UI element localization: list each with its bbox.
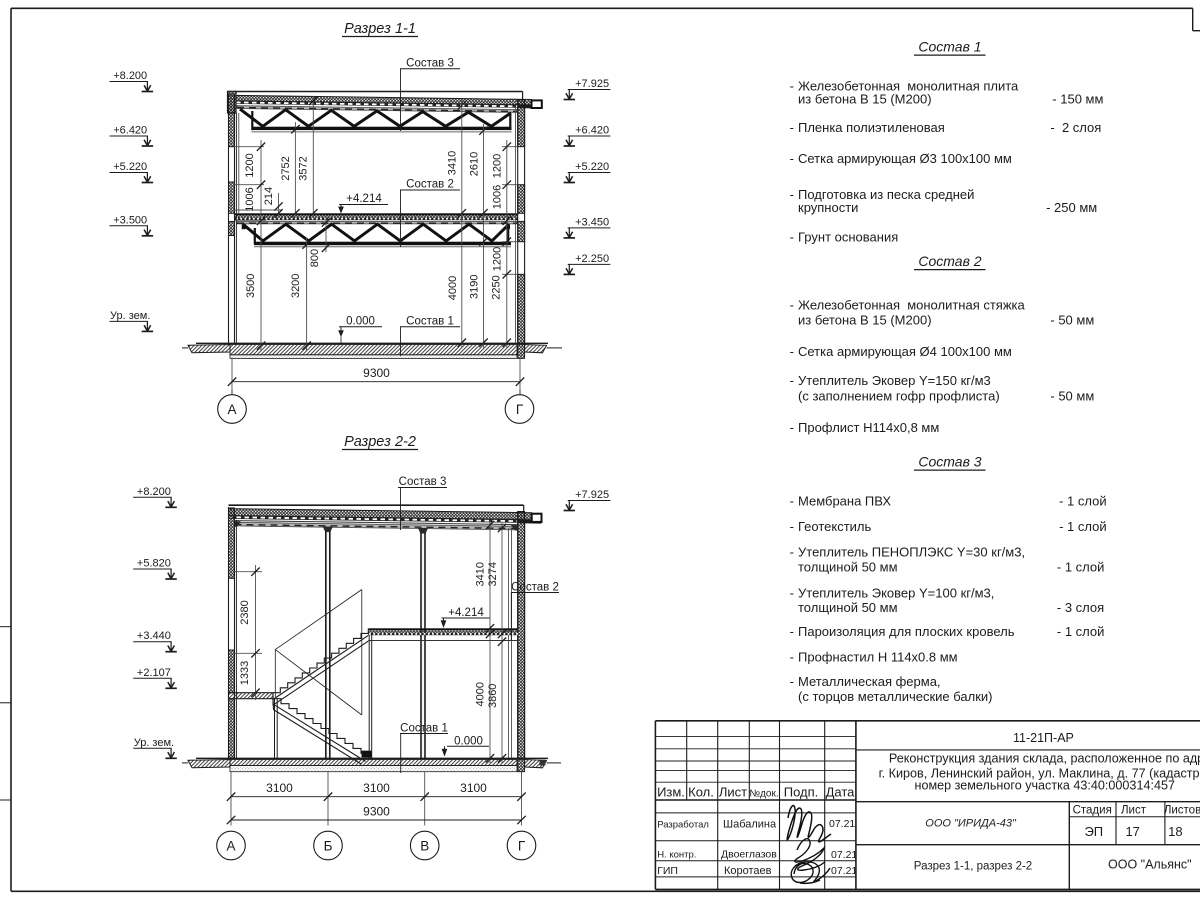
svg-text:4000: 4000 <box>475 682 487 706</box>
svg-text:1200: 1200 <box>491 247 503 271</box>
svg-text:Дата: Дата <box>826 784 856 799</box>
svg-text:-: - <box>790 586 794 601</box>
svg-text:-: - <box>790 519 794 534</box>
svg-text:1200: 1200 <box>491 154 503 178</box>
svg-text:Стадия: Стадия <box>1073 805 1112 817</box>
svg-text:+4.214: +4.214 <box>346 193 382 205</box>
svg-text:+7.925: +7.925 <box>575 489 609 501</box>
svg-text:ЭП: ЭП <box>1084 824 1103 839</box>
svg-text:- 50 мм: - 50 мм <box>1050 388 1094 403</box>
svg-text:Б: Б <box>324 839 333 854</box>
svg-text:-: - <box>790 79 794 94</box>
svg-text:1006: 1006 <box>244 187 256 211</box>
svg-text:9300: 9300 <box>363 366 390 380</box>
svg-text:-: - <box>790 674 794 689</box>
svg-text:+5.820: +5.820 <box>137 558 171 570</box>
svg-text:3572: 3572 <box>298 156 310 180</box>
svg-text:+4.214: +4.214 <box>448 607 484 619</box>
svg-text:- 1 слой: - 1 слой <box>1057 560 1105 575</box>
svg-text:Мембрана ПВХ: Мембрана ПВХ <box>798 494 891 509</box>
svg-text:Состав 2: Состав 2 <box>511 581 559 593</box>
svg-text:-: - <box>790 120 794 135</box>
svg-text:+7.925: +7.925 <box>575 78 609 90</box>
svg-text:3410: 3410 <box>475 562 487 586</box>
svg-text:Состав 1: Состав 1 <box>918 39 981 55</box>
svg-text:Коротаев: Коротаев <box>724 865 772 877</box>
svg-text:4000: 4000 <box>447 276 459 300</box>
svg-text:номер земельного участка 43:40: номер земельного участка 43:40:000314:45… <box>915 779 1175 793</box>
svg-text:+8.200: +8.200 <box>137 486 171 498</box>
svg-text:Разрез 1-1: Разрез 1-1 <box>344 21 416 37</box>
svg-text:Н. контр.: Н. контр. <box>657 850 696 861</box>
svg-text:(с торцов металлические балки): (с торцов металлические балки) <box>798 689 993 704</box>
svg-text:Пленка полиэтиленовая: Пленка полиэтиленовая <box>798 120 945 135</box>
svg-text:07.21: 07.21 <box>831 849 857 861</box>
svg-text:3100: 3100 <box>460 781 487 795</box>
svg-text:Подп.: Подп. <box>784 784 819 799</box>
svg-text:2380: 2380 <box>239 600 251 624</box>
svg-text:07.21: 07.21 <box>831 865 857 877</box>
svg-text:(с заполнением гофр профлиста): (с заполнением гофр профлиста) <box>798 388 1000 403</box>
svg-text:ООО "Альянс": ООО "Альянс" <box>1108 858 1192 872</box>
svg-text:ООО "ИРИДА-43": ООО "ИРИДА-43" <box>925 818 1017 830</box>
svg-text:-: - <box>790 344 794 359</box>
svg-text:толщиной 50 мм: толщиной 50 мм <box>798 600 898 615</box>
svg-text:- 1 слой: - 1 слой <box>1057 624 1105 639</box>
svg-text:3410: 3410 <box>447 151 459 175</box>
svg-text:+6.420: +6.420 <box>575 125 609 137</box>
svg-text:Состав 3: Состав 3 <box>399 476 447 488</box>
svg-text:17: 17 <box>1125 824 1139 839</box>
svg-text:Грунт основания: Грунт основания <box>798 229 898 244</box>
svg-text:Шабалина: Шабалина <box>723 819 777 831</box>
svg-text:+5.220: +5.220 <box>575 161 609 173</box>
svg-text:3190: 3190 <box>468 274 480 298</box>
svg-text:Состав 3: Состав 3 <box>918 454 981 470</box>
svg-text:-: - <box>790 373 794 388</box>
svg-text:-: - <box>790 297 794 312</box>
svg-text:Профнастил Н 114х0.8 мм: Профнастил Н 114х0.8 мм <box>798 649 958 664</box>
svg-text:Металлическая ферма,: Металлическая ферма, <box>798 674 941 689</box>
svg-text:Сетка армирующая Ø3 100х100 мм: Сетка армирующая Ø3 100х100 мм <box>798 151 1012 166</box>
svg-text:+3.450: +3.450 <box>575 216 609 228</box>
svg-text:-: - <box>790 151 794 166</box>
svg-text:-: - <box>790 649 794 664</box>
svg-text:3500: 3500 <box>245 274 257 298</box>
svg-text:Железобетонная монолитная стя: Железобетонная монолитная стяжка <box>798 297 1026 312</box>
svg-text:- 150 мм: - 150 мм <box>1052 91 1103 106</box>
svg-text:1006: 1006 <box>491 185 503 209</box>
svg-text:-: - <box>790 229 794 244</box>
svg-text:07.21: 07.21 <box>829 818 855 830</box>
svg-text:ГИП: ГИП <box>657 865 678 877</box>
svg-text:Состав 1: Состав 1 <box>406 316 454 328</box>
svg-text:3200: 3200 <box>290 274 302 298</box>
svg-text:3100: 3100 <box>363 781 390 795</box>
svg-text:- 1 слой: - 1 слой <box>1059 494 1107 509</box>
svg-text:2610: 2610 <box>468 152 480 176</box>
svg-text:2752: 2752 <box>280 156 292 180</box>
svg-text:Профлист Н114х0,8 мм: Профлист Н114х0,8 мм <box>798 420 939 435</box>
svg-text:Состав 3: Состав 3 <box>406 58 454 70</box>
svg-text:Утеплитель ПЕНОПЛЭКС Y=30 кг/м: Утеплитель ПЕНОПЛЭКС Y=30 кг/м3, <box>798 544 1025 559</box>
svg-text:Состав 2: Состав 2 <box>918 253 981 269</box>
svg-text:Разработал: Разработал <box>657 820 709 831</box>
svg-text:214: 214 <box>263 187 275 205</box>
svg-text:1200: 1200 <box>244 153 256 177</box>
svg-text:Утеплитель Эковер Y=150 кг/м3: Утеплитель Эковер Y=150 кг/м3 <box>798 373 991 388</box>
svg-text:Разрез 1-1, разрез 2-2: Разрез 1-1, разрез 2-2 <box>914 861 1032 873</box>
svg-text:18: 18 <box>1168 824 1182 839</box>
svg-text:Геотекстиль: Геотекстиль <box>798 519 872 534</box>
svg-text:Реконструкция здания склада, р: Реконструкция здания склада, расположенн… <box>889 751 1200 765</box>
svg-text:+6.420: +6.420 <box>113 125 147 137</box>
svg-text:3100: 3100 <box>266 781 293 795</box>
svg-text:В: В <box>420 839 429 854</box>
svg-text:3860: 3860 <box>487 684 499 708</box>
svg-text:Состав 2: Состав 2 <box>406 179 454 191</box>
svg-text:Состав 1: Состав 1 <box>400 722 448 734</box>
svg-text:А: А <box>227 402 236 417</box>
svg-text:Пароизоляция для плоских крове: Пароизоляция для плоских кровель <box>798 624 1015 639</box>
svg-text:-: - <box>790 544 794 559</box>
svg-text:800: 800 <box>309 249 321 267</box>
svg-text:+2.250: +2.250 <box>575 253 609 265</box>
svg-text:Листов: Листов <box>1164 805 1200 817</box>
svg-text:Ур. зем.: Ур. зем. <box>110 310 150 322</box>
svg-text:№док.: №док. <box>749 788 778 799</box>
svg-text:9300: 9300 <box>363 804 390 818</box>
svg-text:крупности: крупности <box>798 200 858 215</box>
svg-text:11-21П-АР: 11-21П-АР <box>1013 731 1074 745</box>
svg-text:+3.440: +3.440 <box>137 630 171 642</box>
svg-text:Лист: Лист <box>719 784 747 799</box>
svg-text:3274: 3274 <box>487 562 499 586</box>
svg-text:А: А <box>226 839 235 854</box>
svg-text:Ур. зем.: Ур. зем. <box>134 737 174 749</box>
svg-text:- 1 слой: - 1 слой <box>1059 519 1107 534</box>
svg-text:0.000: 0.000 <box>454 735 483 747</box>
svg-text:толщиной 50 мм: толщиной 50 мм <box>798 560 898 575</box>
svg-text:+2.107: +2.107 <box>137 667 171 679</box>
svg-text:- 250 мм: - 250 мм <box>1046 200 1097 215</box>
svg-text:-: - <box>790 420 794 435</box>
svg-text:- 2 слоя: - 2 слоя <box>1050 120 1101 135</box>
svg-text:Г: Г <box>516 402 524 417</box>
svg-text:-: - <box>790 494 794 509</box>
svg-text:+8.200: +8.200 <box>113 70 147 82</box>
svg-text:0.000: 0.000 <box>346 316 375 328</box>
svg-text:из бетона В 15 (М200): из бетона В 15 (М200) <box>798 91 932 106</box>
svg-text:2250: 2250 <box>490 275 502 299</box>
svg-text:Разрез 2-2: Разрез 2-2 <box>344 434 416 450</box>
svg-text:Г: Г <box>518 839 526 854</box>
svg-text:+3.500: +3.500 <box>113 214 147 226</box>
svg-text:Кол.: Кол. <box>688 784 714 799</box>
svg-text:Изм.: Изм. <box>657 784 685 799</box>
svg-text:- 50 мм: - 50 мм <box>1050 313 1094 328</box>
svg-text:-: - <box>790 187 794 202</box>
svg-text:из бетона В 15 (М200): из бетона В 15 (М200) <box>798 313 932 328</box>
svg-text:Сетка армирующая Ø4 100х100 мм: Сетка армирующая Ø4 100х100 мм <box>798 344 1012 359</box>
svg-text:-: - <box>790 624 794 639</box>
svg-text:1333: 1333 <box>239 661 251 685</box>
svg-text:+5.220: +5.220 <box>113 161 147 173</box>
svg-text:Утеплитель Эковер Y=100 кг/м3,: Утеплитель Эковер Y=100 кг/м3, <box>798 586 994 601</box>
svg-text:- 3 слоя: - 3 слоя <box>1057 600 1104 615</box>
svg-text:Двоеглазов: Двоеглазов <box>721 848 777 860</box>
svg-text:Лист: Лист <box>1121 805 1147 817</box>
